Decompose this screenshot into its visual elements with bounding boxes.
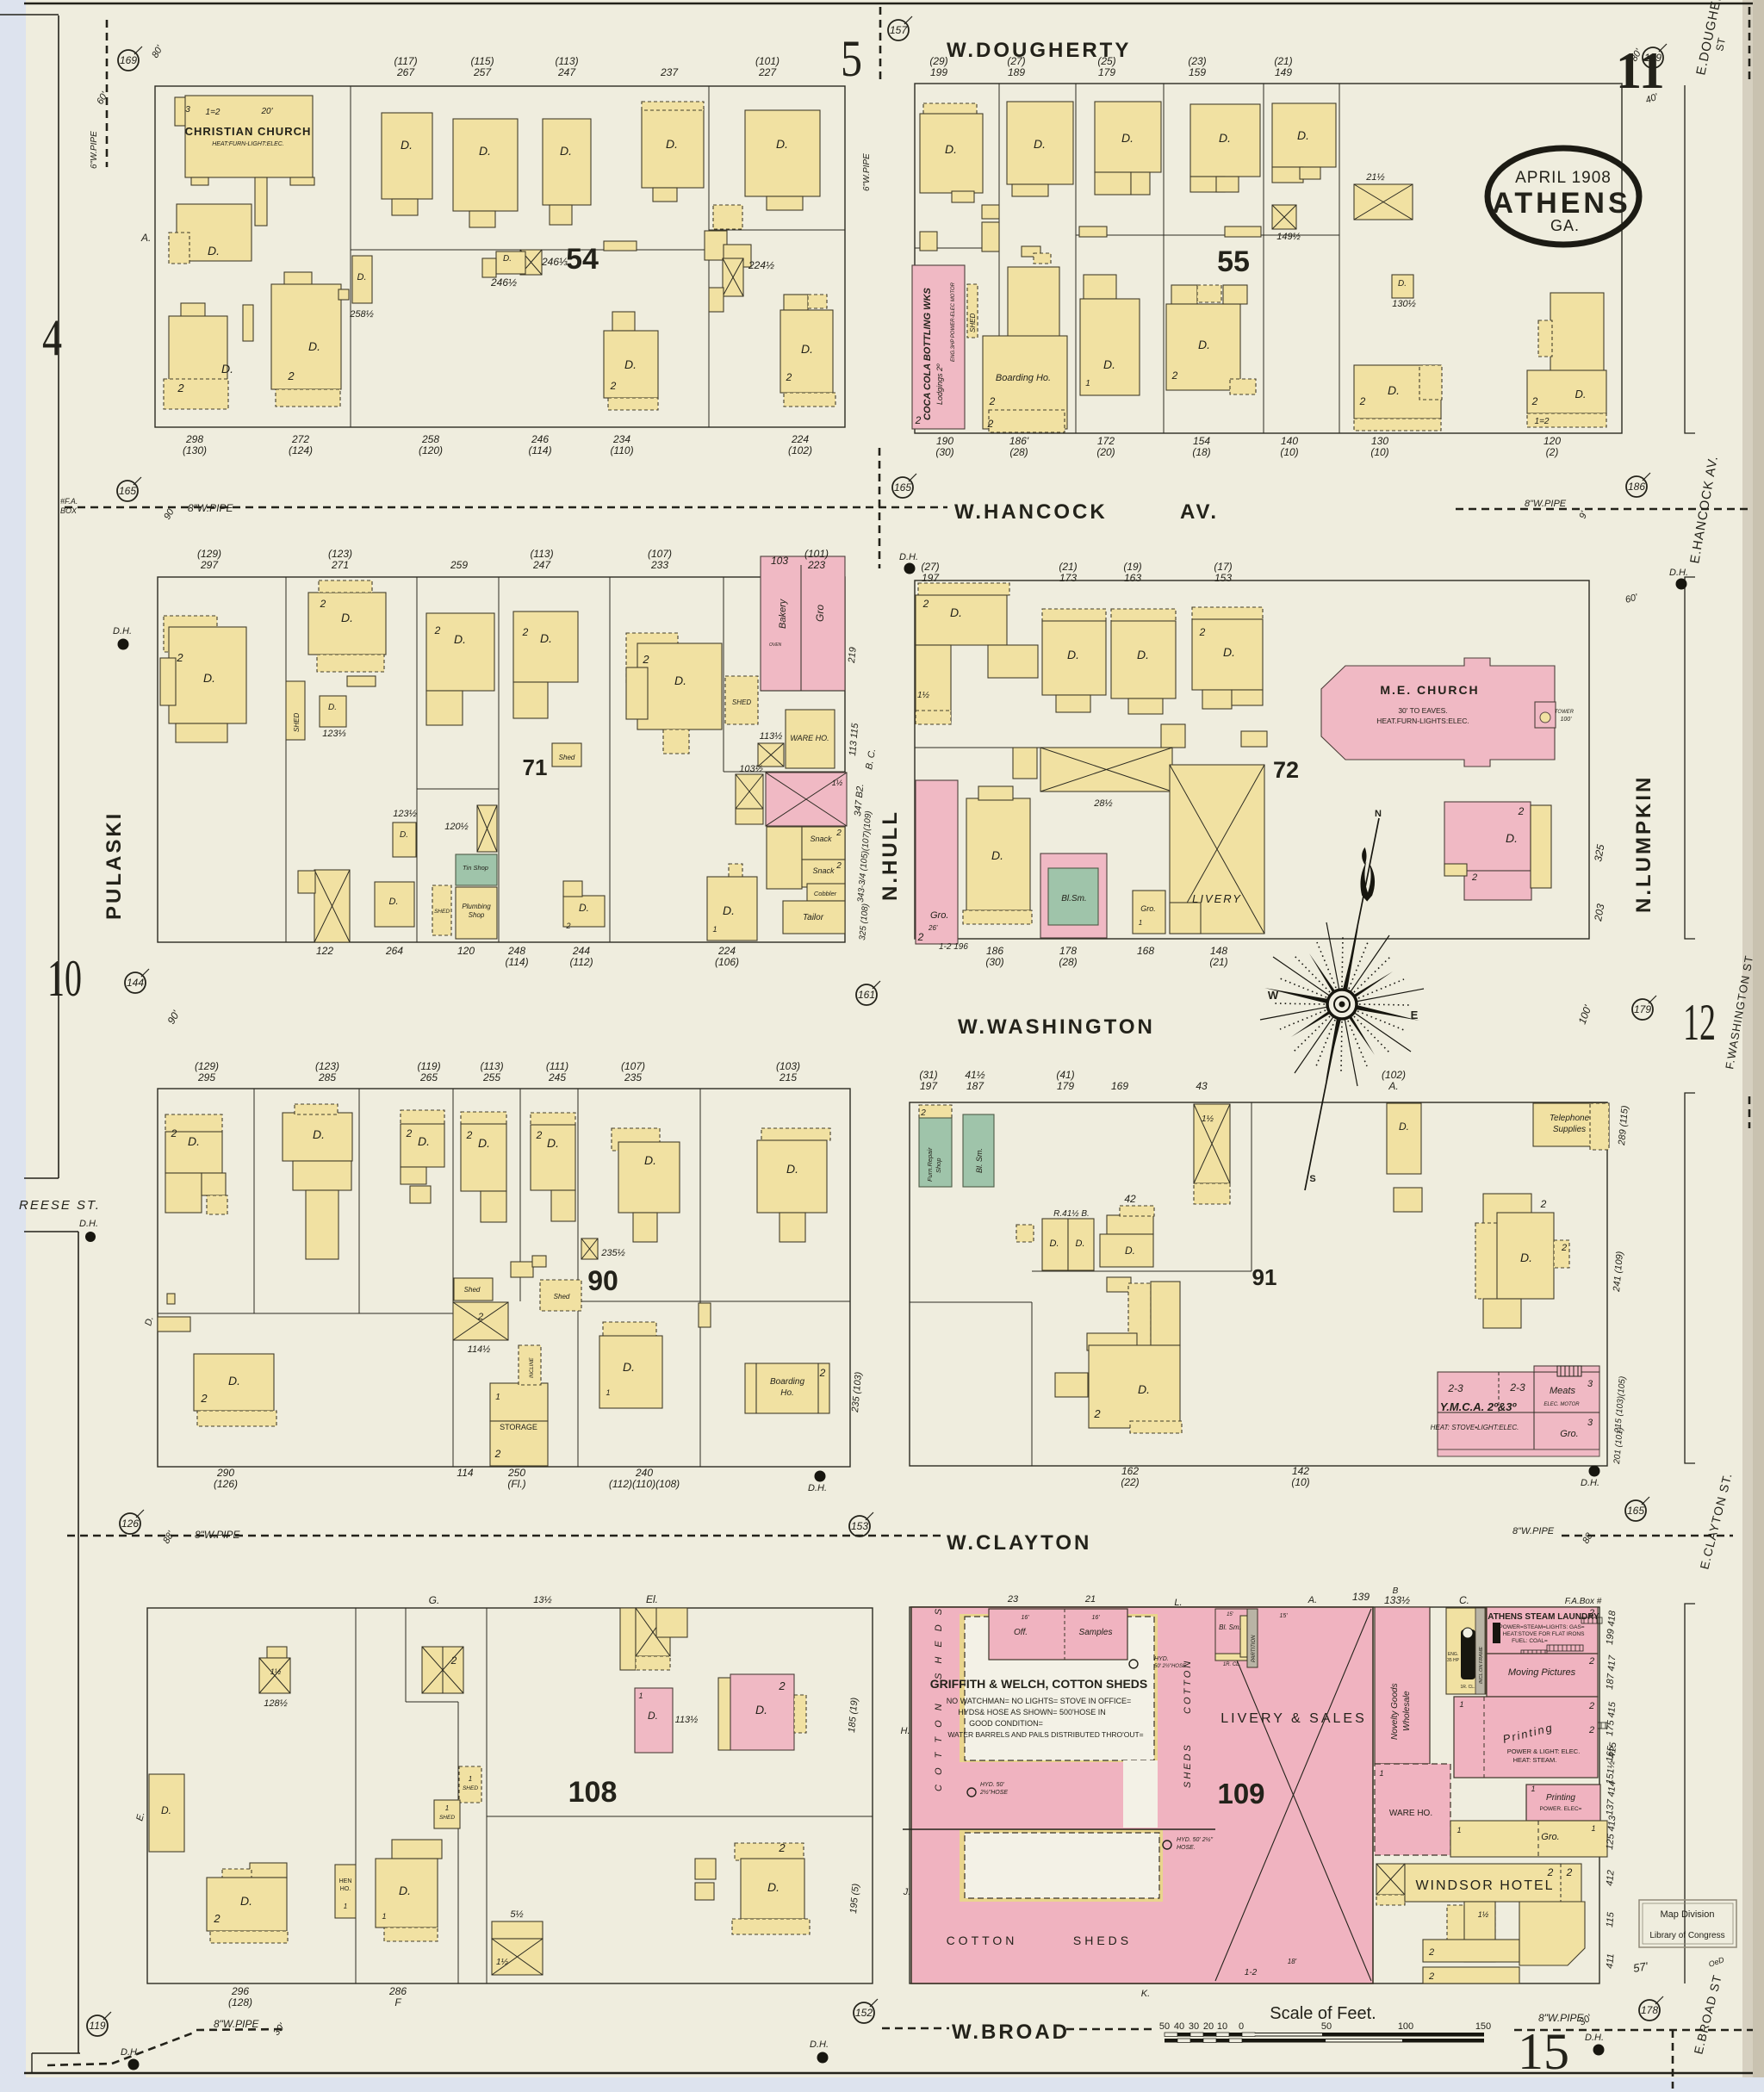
svg-text:(119): (119) [417, 1060, 440, 1072]
svg-text:D.H.: D.H. [899, 552, 918, 562]
svg-text:2: 2 [434, 624, 441, 636]
svg-text:#F.A.: #F.A. [60, 497, 78, 506]
svg-text:D.: D. [400, 830, 408, 840]
svg-text:WATER BARRELS AND PAILS DISTRI: WATER BARRELS AND PAILS DISTRIBUTED THRO… [947, 1730, 1143, 1739]
svg-text:122: 122 [316, 945, 333, 957]
svg-text:Gro.: Gro. [1560, 1429, 1578, 1439]
svg-text:W.CLAYTON: W.CLAYTON [947, 1531, 1091, 1555]
svg-text:TOWER: TOWER [1555, 710, 1575, 715]
svg-text:Off.: Off. [1014, 1628, 1028, 1637]
svg-text:N.HULL: N.HULL [879, 810, 902, 901]
svg-text:(123): (123) [315, 1060, 339, 1072]
svg-text:(10): (10) [1370, 446, 1388, 458]
svg-text:F: F [394, 1996, 401, 2008]
svg-text:1: 1 [1591, 1824, 1595, 1833]
svg-text:(30): (30) [935, 446, 953, 458]
svg-text:150: 150 [1475, 2021, 1491, 2032]
svg-text:297: 297 [200, 559, 219, 571]
svg-text:(117): (117) [394, 55, 417, 67]
svg-text:(112): (112) [569, 956, 593, 968]
svg-text:149½: 149½ [1276, 232, 1301, 242]
svg-text:224: 224 [717, 945, 736, 957]
svg-text:265: 265 [419, 1071, 438, 1083]
svg-text:COCA COLA BOTTLING WKS: COCA COLA BOTTLING WKS [922, 288, 933, 420]
svg-text:2: 2 [1199, 626, 1206, 638]
svg-text:D.: D. [228, 1374, 240, 1387]
svg-text:Gro.: Gro. [1541, 1832, 1559, 1842]
svg-text:D.: D. [1067, 648, 1079, 661]
svg-text:2: 2 [642, 653, 649, 666]
svg-text:179: 179 [1098, 66, 1115, 78]
svg-text:D.: D. [945, 142, 957, 156]
svg-text:2: 2 [819, 1367, 826, 1379]
svg-text:295: 295 [197, 1071, 215, 1083]
svg-text:Snack: Snack [810, 835, 832, 843]
svg-text:57': 57' [1632, 1959, 1649, 1975]
svg-text:K.: K. [1141, 1989, 1150, 1999]
svg-text:D.: D. [786, 1162, 798, 1176]
svg-text:(21): (21) [1209, 956, 1227, 968]
svg-text:130: 130 [1371, 435, 1388, 447]
svg-text:2: 2 [1547, 1866, 1554, 1878]
svg-text:30: 30 [1189, 2021, 1199, 2032]
svg-text:Gro.: Gro. [1140, 904, 1156, 913]
svg-text:35 HP: 35 HP [1447, 1658, 1460, 1663]
svg-text:D.H.: D.H. [79, 1219, 98, 1229]
svg-text:POWER. ELEC=: POWER. ELEC= [1540, 1806, 1582, 1812]
svg-text:Moving Pictures: Moving Pictures [1508, 1667, 1576, 1678]
svg-text:1: 1 [344, 1903, 347, 1910]
svg-text:71: 71 [523, 754, 548, 780]
svg-text:153: 153 [1214, 572, 1232, 584]
svg-text:4: 4 [42, 309, 62, 366]
svg-text:2: 2 [1566, 1866, 1573, 1878]
svg-text:114½: 114½ [468, 1344, 491, 1355]
svg-text:172: 172 [1097, 435, 1115, 447]
svg-text:Shed: Shed [554, 1293, 570, 1301]
svg-text:3: 3 [1587, 1418, 1593, 1428]
svg-text:1½: 1½ [832, 779, 843, 787]
svg-text:10: 10 [47, 950, 82, 1007]
svg-text:2: 2 [1540, 1198, 1547, 1210]
svg-text:(29): (29) [929, 55, 947, 67]
svg-text:8"W.PIPE: 8"W.PIPE [188, 502, 233, 514]
svg-text:(128): (128) [228, 1996, 252, 2008]
svg-text:D.: D. [644, 1153, 656, 1167]
svg-text:GOOD CONDITION=: GOOD CONDITION= [969, 1719, 1043, 1728]
svg-text:1=2: 1=2 [1535, 417, 1550, 426]
svg-text:165: 165 [1627, 1505, 1644, 1517]
svg-text:W.WASHINGTON: W.WASHINGTON [958, 1015, 1155, 1039]
svg-text:D.H.: D.H. [121, 2047, 140, 2058]
svg-text:2: 2 [494, 1448, 501, 1460]
svg-text:90: 90 [587, 1265, 618, 1296]
svg-text:A.: A. [1307, 1595, 1317, 1605]
svg-text:APRIL 1908: APRIL 1908 [1515, 169, 1612, 187]
svg-text:103½: 103½ [739, 764, 763, 774]
svg-text:1½: 1½ [1478, 1910, 1489, 1919]
svg-text:42: 42 [1124, 1193, 1136, 1205]
svg-text:199: 199 [930, 66, 947, 78]
svg-text:HEAT: STOVE•LIGHT:ELEC.: HEAT: STOVE•LIGHT:ELEC. [1431, 1424, 1519, 1431]
svg-text:(101): (101) [804, 548, 829, 560]
svg-text:SHED: SHED [439, 1815, 455, 1821]
svg-text:(20): (20) [1096, 446, 1115, 458]
svg-text:140: 140 [1281, 435, 1298, 447]
svg-text:(115): (115) [470, 55, 494, 67]
svg-text:D.: D. [1076, 1238, 1085, 1249]
svg-text:2: 2 [915, 414, 922, 426]
svg-text:163: 163 [1124, 572, 1141, 584]
svg-text:D.: D. [1388, 383, 1400, 397]
svg-text:1R. CL.: 1R. CL. [1223, 1662, 1240, 1667]
svg-text:197: 197 [920, 1080, 938, 1092]
svg-text:2: 2 [917, 931, 924, 943]
svg-text:A.: A. [140, 232, 151, 244]
svg-text:Ho.: Ho. [780, 1388, 794, 1398]
svg-text:8"W.PIPE: 8"W.PIPE [214, 2018, 259, 2030]
svg-text:108: 108 [568, 1776, 618, 1809]
svg-text:D.: D. [1575, 388, 1587, 400]
svg-text:D.: D. [579, 902, 589, 914]
svg-text:H.: H. [901, 1726, 910, 1736]
svg-text:Furn.Repair: Furn.Repair [926, 1147, 934, 1182]
svg-text:S: S [1309, 1174, 1315, 1184]
svg-text:244: 244 [572, 945, 590, 957]
svg-text:(120): (120) [419, 444, 443, 456]
svg-text:(123): (123) [328, 548, 352, 560]
svg-text:ELEC. MOTOR: ELEC. MOTOR [1543, 1402, 1580, 1407]
svg-text:D.: D. [767, 1880, 780, 1894]
svg-text:219: 219 [847, 647, 859, 664]
svg-text:Shed: Shed [559, 754, 575, 761]
svg-text:Lodgings 2º: Lodgings 2º [935, 363, 944, 405]
svg-text:16': 16' [1091, 1615, 1100, 1621]
svg-text:(41): (41) [1056, 1069, 1074, 1081]
svg-text:Bl.Sm.: Bl.Sm. [1061, 894, 1086, 903]
svg-text:2: 2 [1428, 1971, 1434, 1982]
svg-text:169: 169 [1111, 1080, 1128, 1092]
svg-text:SHED: SHED [463, 1785, 478, 1791]
svg-text:2: 2 [778, 1679, 786, 1692]
svg-text:6"W.PIPE: 6"W.PIPE [90, 131, 99, 169]
svg-text:D.: D. [648, 1710, 658, 1722]
svg-text:240: 240 [635, 1467, 653, 1479]
svg-text:215: 215 [779, 1071, 797, 1083]
svg-text:Y.M.C.A. 2º&3º: Y.M.C.A. 2º&3º [1440, 1400, 1518, 1413]
svg-text:285: 285 [318, 1071, 336, 1083]
svg-text:165: 165 [894, 481, 911, 494]
svg-text:ATHENS: ATHENS [1492, 187, 1630, 220]
svg-text:D.: D. [503, 254, 512, 264]
svg-text:2: 2 [522, 626, 529, 638]
svg-text:1: 1 [1379, 1769, 1383, 1778]
svg-text:Samples: Samples [1079, 1628, 1113, 1637]
svg-text:HEAT:STOVE FOR FLAT IRONS: HEAT:STOVE FOR FLAT IRONS [1503, 1631, 1586, 1637]
svg-text:169: 169 [120, 54, 137, 66]
svg-text:LIVERY: LIVERY [1192, 892, 1242, 905]
svg-text:26': 26' [928, 924, 938, 932]
svg-text:D.: D. [1050, 1238, 1059, 1249]
svg-text:HEAT: STEAM.: HEAT: STEAM. [1513, 1756, 1557, 1764]
svg-text:1-2 196: 1-2 196 [939, 942, 968, 952]
svg-text:(113): (113) [555, 55, 578, 67]
svg-text:120: 120 [457, 945, 475, 957]
svg-text:D.: D. [188, 1134, 200, 1148]
svg-text:161: 161 [858, 989, 875, 1001]
svg-text:178: 178 [1059, 945, 1077, 957]
svg-text:(126): (126) [214, 1478, 238, 1490]
svg-text:(112)(110)(108): (112)(110)(108) [609, 1478, 680, 1490]
svg-text:290: 290 [216, 1467, 234, 1479]
svg-text:D.H.: D.H. [1585, 2033, 1604, 2043]
svg-text:271: 271 [331, 559, 349, 571]
svg-text:SHED: SHED [969, 313, 977, 332]
svg-text:264: 264 [385, 945, 403, 957]
svg-text:41½: 41½ [965, 1069, 984, 1081]
svg-text:W.HANCOCK: W.HANCOCK [954, 500, 1108, 524]
svg-text:2: 2 [536, 1129, 543, 1141]
svg-text:D.: D. [950, 605, 962, 619]
svg-text:248: 248 [507, 945, 525, 957]
svg-text:15': 15' [1227, 1612, 1234, 1617]
svg-text:CHRISTIAN CHURCH: CHRISTIAN CHURCH [185, 125, 312, 138]
svg-text:179: 179 [1057, 1080, 1074, 1092]
svg-text:0: 0 [1239, 2021, 1244, 2032]
svg-text:2: 2 [1359, 395, 1366, 407]
svg-text:HEN: HEN [339, 1878, 352, 1884]
svg-text:GRIFFITH & WELCH, COTTON SHEDS: GRIFFITH & WELCH, COTTON SHEDS [930, 1677, 1148, 1691]
svg-text:(130): (130) [183, 444, 207, 456]
svg-text:139: 139 [1352, 1591, 1370, 1603]
svg-text:D.: D. [1034, 137, 1046, 151]
svg-text:2: 2 [1588, 1701, 1594, 1711]
svg-text:2: 2 [177, 382, 184, 394]
svg-text:2: 2 [406, 1127, 413, 1139]
svg-text:D.: D. [341, 611, 353, 624]
svg-text:103: 103 [771, 555, 788, 567]
svg-text:233: 233 [650, 559, 668, 571]
svg-text:2: 2 [989, 395, 996, 407]
svg-text:D.: D. [801, 342, 813, 356]
svg-text:D.: D. [666, 137, 678, 151]
svg-text:298: 298 [185, 433, 203, 445]
svg-text:2: 2 [835, 829, 842, 838]
svg-text:2: 2 [176, 651, 183, 664]
svg-text:D.: D. [328, 703, 337, 712]
svg-text:Shop: Shop [935, 1158, 942, 1173]
svg-text:(102): (102) [788, 444, 812, 456]
svg-text:286: 286 [388, 1985, 407, 1997]
svg-text:(113): (113) [480, 1060, 503, 1072]
svg-text:1: 1 [606, 1388, 610, 1397]
svg-text:Meats: Meats [1550, 1386, 1575, 1396]
svg-text:(28): (28) [1059, 956, 1077, 968]
svg-text:148: 148 [1210, 945, 1227, 957]
svg-text:1: 1 [1531, 1785, 1535, 1793]
svg-text:J.: J. [903, 1887, 911, 1897]
svg-text:411: 411 [1605, 1953, 1616, 1970]
svg-text:Shop: Shop [469, 911, 485, 919]
svg-text:296: 296 [231, 1985, 249, 1997]
svg-text:A.: A. [1388, 1080, 1398, 1092]
svg-text:PARTITION: PARTITION [1252, 1635, 1257, 1662]
svg-text:(19): (19) [1123, 561, 1141, 573]
svg-text:15': 15' [1279, 1613, 1288, 1619]
svg-text:126: 126 [121, 1518, 139, 1530]
svg-text:3: 3 [185, 105, 190, 115]
svg-text:LIVERY & SALES: LIVERY & SALES [1221, 1711, 1366, 1726]
svg-text:D.: D. [389, 897, 399, 907]
svg-text:120½: 120½ [444, 822, 469, 832]
svg-text:115: 115 [1605, 1911, 1617, 1927]
svg-text:C O T T O N: C O T T O N [934, 1700, 944, 1791]
svg-text:(10): (10) [1280, 446, 1298, 458]
svg-text:189: 189 [1644, 52, 1662, 64]
svg-text:2: 2 [922, 598, 929, 610]
svg-text:162: 162 [1121, 1465, 1139, 1477]
svg-text:91: 91 [1252, 1264, 1277, 1290]
svg-text:20': 20' [260, 107, 273, 116]
svg-text:D.: D. [399, 1884, 411, 1897]
svg-text:(27): (27) [921, 561, 939, 573]
svg-text:D.: D. [418, 1134, 430, 1148]
svg-text:D.: D. [357, 272, 367, 282]
svg-text:123½: 123½ [393, 809, 417, 819]
svg-text:1½: 1½ [917, 691, 930, 700]
svg-text:D.: D. [1506, 831, 1518, 845]
svg-text:(129): (129) [195, 1060, 219, 1072]
svg-text:234: 234 [612, 433, 630, 445]
svg-text:173: 173 [1059, 572, 1077, 584]
svg-text:2: 2 [565, 922, 570, 930]
svg-text:120: 120 [1543, 435, 1561, 447]
svg-text:154: 154 [1193, 435, 1210, 447]
svg-text:N.LUMPKIN: N.LUMPKIN [1632, 775, 1655, 913]
svg-text:6"W.PIPE: 6"W.PIPE [862, 153, 872, 191]
svg-text:2: 2 [1471, 872, 1477, 883]
svg-text:224: 224 [791, 433, 809, 445]
svg-text:128½: 128½ [264, 1698, 288, 1709]
svg-text:D.: D. [776, 137, 788, 151]
svg-text:SHED: SHED [434, 909, 450, 915]
svg-text:(113): (113) [530, 548, 553, 560]
svg-text:149: 149 [1275, 66, 1292, 78]
svg-text:Bl. Sm.: Bl. Sm. [1219, 1623, 1241, 1631]
svg-text:REESE ST.: REESE ST. [19, 1198, 101, 1213]
svg-text:(21): (21) [1274, 55, 1292, 67]
svg-text:D.: D. [624, 357, 637, 371]
svg-text:L.: L. [1174, 1598, 1182, 1608]
svg-text:186': 186' [1009, 435, 1029, 447]
svg-text:INCL.ON FRAME: INCL.ON FRAME [1479, 1647, 1484, 1684]
svg-text:WARE HO.: WARE HO. [1389, 1809, 1432, 1818]
svg-text:D.: D. [1297, 128, 1309, 142]
svg-text:2: 2 [1171, 369, 1178, 382]
svg-text:2: 2 [835, 861, 842, 871]
svg-text:2: 2 [171, 1127, 177, 1139]
svg-text:N: N [1375, 809, 1382, 819]
svg-text:2: 2 [1588, 1725, 1594, 1735]
svg-text:(18): (18) [1192, 446, 1210, 458]
svg-text:197: 197 [922, 572, 940, 584]
svg-text:Boarding: Boarding [770, 1377, 804, 1387]
svg-text:1: 1 [495, 1393, 500, 1402]
svg-text:D.: D. [1520, 1251, 1532, 1264]
svg-text:1½: 1½ [1202, 1114, 1214, 1124]
svg-text:D.: D. [755, 1703, 767, 1716]
svg-text:D.: D. [1219, 131, 1231, 145]
svg-text:POWER=STEAM=LIGHTS: GAS=: POWER=STEAM=LIGHTS: GAS= [1499, 1624, 1584, 1630]
svg-text:142: 142 [1292, 1465, 1309, 1477]
svg-text:1=2: 1=2 [206, 108, 220, 117]
svg-text:186: 186 [1628, 481, 1645, 493]
svg-text:235: 235 [624, 1071, 642, 1083]
svg-text:Wholesale: Wholesale [1402, 1691, 1412, 1731]
svg-text:D.: D. [1223, 645, 1235, 659]
svg-text:2: 2 [213, 1912, 220, 1925]
svg-text:40: 40 [1174, 2021, 1184, 2032]
svg-text:Tin Shop: Tin Shop [463, 864, 488, 872]
svg-text:(23): (23) [1188, 55, 1206, 67]
svg-text:(107): (107) [648, 548, 672, 560]
svg-text:100: 100 [1398, 2021, 1413, 2032]
svg-text:30' TO EAVES.: 30' TO EAVES. [1398, 706, 1447, 715]
svg-text:POWER & LIGHT: ELEC.: POWER & LIGHT: ELEC. [1507, 1747, 1581, 1755]
svg-text:50: 50 [1321, 2021, 1332, 2032]
svg-text:HO.: HO. [340, 1886, 351, 1892]
svg-text:Printing: Printing [1546, 1793, 1575, 1803]
svg-text:152: 152 [855, 2007, 873, 2019]
svg-text:F.A.Box #: F.A.Box # [1565, 1597, 1602, 1606]
svg-text:2: 2 [778, 1841, 786, 1854]
svg-text:ENG.: ENG. [1448, 1652, 1458, 1657]
svg-text:HYD.: HYD. [1154, 1656, 1169, 1662]
svg-text:(129): (129) [197, 548, 221, 560]
svg-text:ATHENS STEAM LAUNDRY: ATHENS STEAM LAUNDRY [1488, 1612, 1599, 1622]
svg-text:(10): (10) [1291, 1476, 1309, 1488]
svg-text:Novelty Goods: Novelty Goods [1390, 1683, 1400, 1740]
svg-text:100': 100' [1560, 717, 1572, 723]
svg-text:2: 2 [1428, 1947, 1434, 1958]
svg-text:(102): (102) [1382, 1069, 1406, 1081]
svg-text:Cobbler: Cobbler [814, 890, 837, 897]
svg-text:153: 153 [851, 1520, 868, 1532]
svg-text:50: 50 [1159, 2021, 1170, 2032]
svg-text:(114): (114) [505, 956, 528, 968]
svg-text:D.: D. [479, 144, 491, 158]
svg-text:267: 267 [396, 66, 415, 78]
svg-text:WARE HO.: WARE HO. [790, 734, 829, 742]
svg-text:1½: 1½ [496, 1958, 509, 1967]
svg-text:(21): (21) [1059, 561, 1077, 573]
svg-text:M.E. CHURCH: M.E. CHURCH [1380, 683, 1479, 697]
svg-text:247: 247 [532, 559, 551, 571]
svg-text:D.: D. [454, 632, 466, 646]
svg-text:2: 2 [477, 1312, 483, 1322]
svg-text:INCLINE: INCLINE [530, 1356, 535, 1378]
svg-text:(106): (106) [715, 956, 739, 968]
svg-text:187: 187 [966, 1080, 984, 1092]
svg-text:(31): (31) [919, 1069, 937, 1081]
svg-text:1: 1 [445, 1804, 449, 1812]
svg-text:D.H.: D.H. [1669, 568, 1688, 578]
svg-text:412: 412 [1605, 1870, 1617, 1886]
svg-text:258½: 258½ [349, 309, 374, 320]
svg-text:Scale of Feet.: Scale of Feet. [1270, 2004, 1376, 2023]
svg-text:259: 259 [450, 559, 468, 571]
svg-text:1: 1 [1139, 919, 1142, 927]
